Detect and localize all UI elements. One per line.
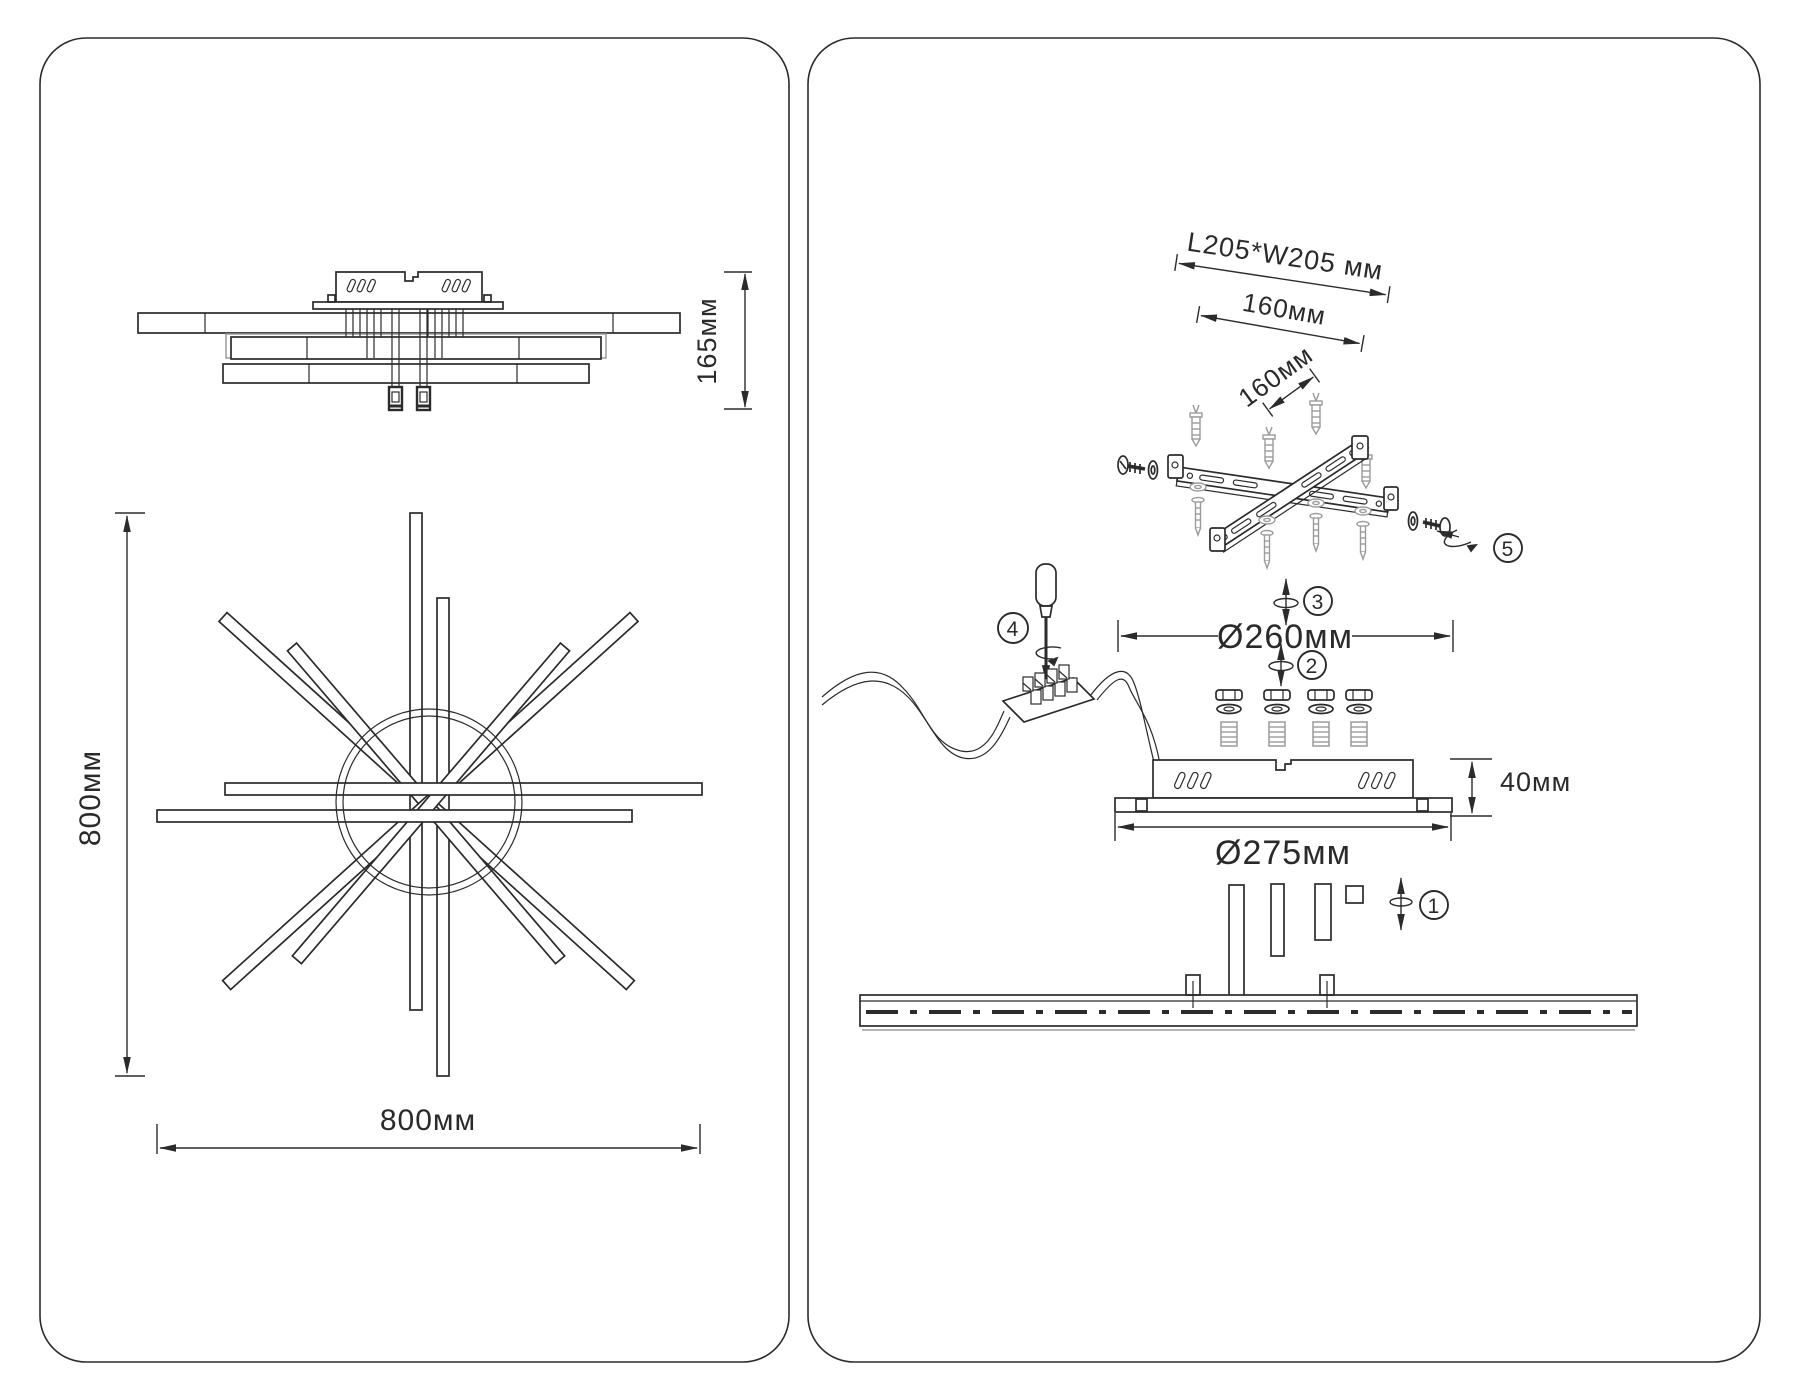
canopy-base-plate [1115,798,1452,812]
base-dia-label: Ø275мм [1215,834,1351,872]
step-2-number: 2 [1306,655,1319,678]
loose-end-cap [1346,886,1363,903]
technical-drawing: 165мм 800мм 800мм [0,0,1800,1400]
star-bar-horizontal-2 [157,810,632,822]
step-3-number: 3 [1312,591,1325,614]
ring-dia-label: Ø260мм [1217,618,1353,656]
side-height-label: 165мм [692,297,722,384]
step-1-number: 1 [1428,895,1441,918]
step-4-number: 4 [1007,618,1020,641]
side-bar-bottom [223,364,589,383]
loose-bar-long [1229,885,1244,1005]
blueprint-page: { "left_panel": { "side_view": { "height… [0,0,1800,1400]
step-5: 5 [1494,534,1522,562]
step-4: 4 [998,613,1028,643]
side-bar-top [138,313,680,333]
plan-width-label: 800мм [380,1104,476,1137]
side-canopy-flange [313,302,503,309]
loose-bar-medium [1271,884,1284,956]
star-bar-vertical-1 [410,513,422,1010]
star-bar-horizontal-1 [225,783,702,795]
plan-height-label: 800мм [74,750,107,846]
step-5-number: 5 [1502,538,1515,561]
canopy-height-label: 40мм [1500,767,1571,797]
loose-bar-short [1315,884,1331,940]
side-bar-mid [231,337,601,359]
